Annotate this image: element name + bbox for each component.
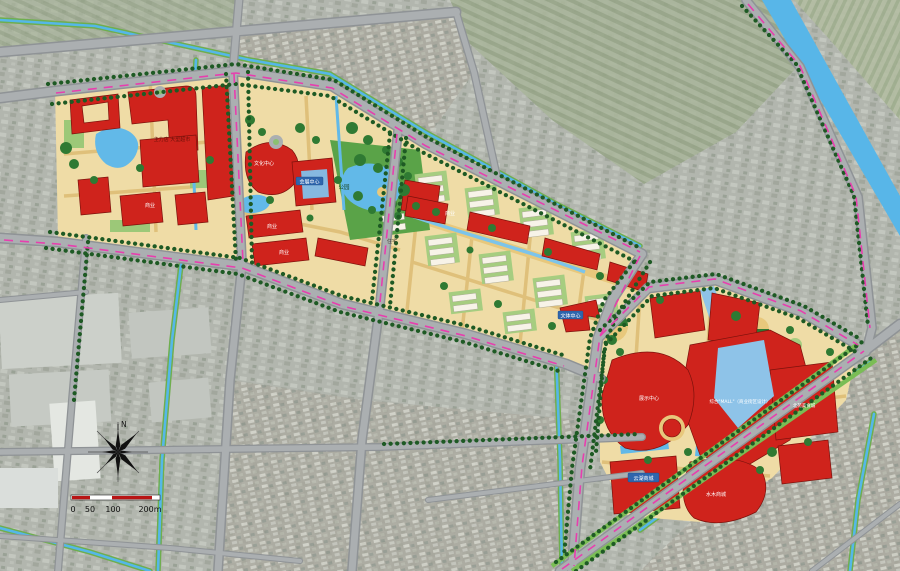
label-display-center: 展示中心 — [639, 395, 659, 402]
map-canvas: 主力店 大型超市 商业 文化中心 会展中心 公园 商业 商业 住宅 商业 文体中… — [0, 0, 900, 571]
label-commerce-b: 商业 — [279, 249, 289, 256]
building-culture-center — [245, 142, 298, 194]
label-food-city: 北苑美食城 — [793, 402, 816, 409]
compass-north-label: N — [121, 420, 127, 429]
scale-tick-200: 200m — [138, 505, 161, 514]
scale-tick-50: 50 — [85, 505, 95, 514]
masterplan-map: 主力店 大型超市 商业 文化中心 会展中心 公园 商业 商业 住宅 商业 文体中… — [0, 0, 900, 571]
label-residence: 住宅 — [387, 238, 397, 245]
label-yunhu-mall: 云湖商城 — [633, 475, 653, 482]
label-mall: 综合"MALL"（商业街区设计） — [709, 398, 770, 405]
label-commerce-a: 商业 — [267, 223, 277, 230]
label-shuimu-mall: 水木商城 — [706, 491, 726, 498]
label-west-commerce: 商业 — [145, 202, 155, 209]
label-commerce-strip: 商业 — [445, 210, 455, 217]
label-park: 公园 — [338, 184, 350, 191]
label-anchor-store: 主力店 大型超市 — [154, 136, 191, 143]
label-exhibition-center: 会展中心 — [299, 179, 319, 186]
label-sports-center: 文体中心 — [560, 313, 580, 320]
label-culture-center: 文化中心 — [254, 160, 274, 167]
scale-bar: 0 50 100 200m — [70, 495, 161, 514]
scale-tick-0: 0 — [70, 505, 75, 514]
village-bottom-left — [218, 380, 362, 571]
scale-tick-100: 100 — [105, 505, 120, 514]
